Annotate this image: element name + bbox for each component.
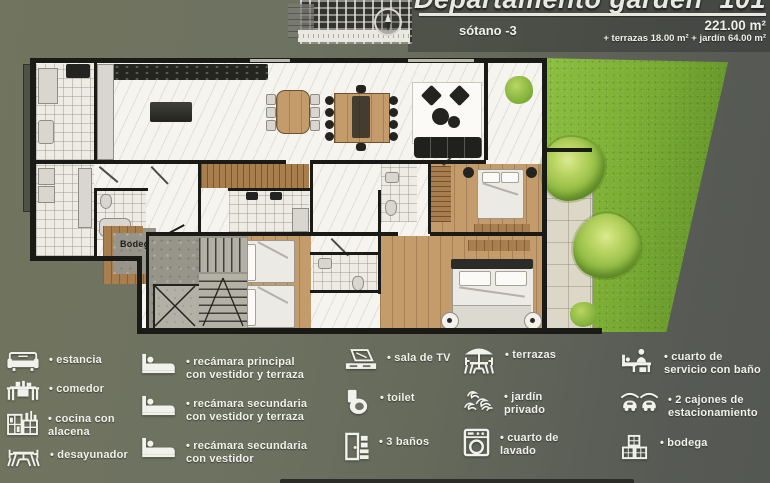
bench [468,240,530,251]
legend-label: • sala de TV [387,348,451,365]
bed-icon [140,436,177,459]
legend-label: • toilet [380,388,415,405]
washer [38,168,55,185]
legend-label: • cocina con alacena [48,409,120,439]
bodega-wall [103,226,143,233]
wall [94,62,97,162]
legend-label: • recámara secundaria con vestidor y ter… [186,394,312,424]
wall [542,148,592,152]
breakfast-chair [266,94,276,105]
toilet-fixture [100,194,112,209]
elevator [153,284,201,332]
legend-column: • terrazas • jardín privado • cuarto de … [462,345,578,458]
legend-item: • 2 cajones de estacionamiento [620,390,770,420]
wall [310,160,486,164]
breakfast-chair [266,120,276,131]
wall [428,162,431,234]
walkin-closet [201,164,309,188]
sofa-icon [6,350,40,373]
toilet-icon [344,388,371,415]
service-sink [38,120,54,144]
legend-label: • 2 cajones de estacionamiento [668,390,770,420]
breakfast-table-icon [6,445,41,468]
bench [474,224,530,232]
stairs-lower [199,274,247,328]
kitchen-cabinets [97,64,114,160]
dining-table-icon [6,379,40,403]
legend-label: • cuarto de lavado [500,428,562,458]
wall [542,58,547,333]
dining-chair [389,132,398,141]
legend-item: • bodega [620,433,770,462]
dining-chair [389,120,398,129]
legend-label: • cuarto de servicio con baño [664,347,768,377]
wall [310,290,380,293]
wall [228,188,313,191]
wall [36,160,286,164]
legend-label: • 3 baños [379,432,429,449]
legend-column: • sala de TV • toilet • 3 baños [344,348,456,461]
legend-item: • cuarto de servicio con baño [620,347,770,377]
dining-chair [389,108,398,117]
legend-item: • recámara secundaria con vestidor [140,436,312,466]
garden-plants-icon [462,387,495,412]
kitchen-island [150,102,192,122]
terrace-umbrella-icon [462,345,496,376]
bottom-bar [280,479,634,483]
wall [94,188,97,258]
legend-label: • estancia [49,350,102,367]
legend-item: • comedor [6,379,138,403]
sink-fixture [385,172,399,183]
bed-master [452,260,534,332]
legend-column: • estancia • comedor • cocina con alacen… [6,350,138,468]
storage-boxes-icon [620,433,651,462]
floor-plan: Bodega [0,0,770,345]
wall [430,232,546,236]
window [408,59,474,62]
washing-machine-icon [462,428,491,457]
stairs-upper [199,238,247,272]
kitchen-counter [112,64,268,80]
wall [146,232,149,330]
breakfast-chair [310,107,320,118]
legend-item: • recámara secundaria con vestidor y ter… [140,394,312,424]
service-room-icon [620,347,655,374]
wall [137,328,602,334]
legend-label: • comedor [49,379,104,396]
wall [30,256,142,261]
wall [310,162,313,236]
tv-icon [344,348,378,371]
legend-column: • recámara principal con vestidor y terr… [140,352,312,466]
bed-twin [241,285,295,328]
dining-chair [389,96,398,105]
legend-label: • jardín privado [504,387,560,417]
legend-item: • cuarto de lavado [462,428,578,458]
dining-chair [325,120,334,129]
legend-label: • terrazas [505,345,556,362]
dining-chair [356,143,366,151]
service-bed [38,68,58,104]
nightstand [463,167,474,178]
legend-item: • cocina con alacena [6,409,138,439]
shower [292,208,309,232]
terrace-plant [505,76,533,104]
kitchen-icon [6,409,39,436]
bed-icon [140,352,177,375]
bed-twin [241,240,295,283]
wall [484,60,488,160]
legend-label: • recámara principal con vestidor y terr… [186,352,312,382]
dining-chair [356,85,366,93]
legend-item: • sala de TV [344,348,456,371]
legend-label: • bodega [660,433,708,450]
bed-secondary [477,169,524,219]
legend-item: • recámara principal con vestidor y terr… [140,352,312,382]
double-sink [270,192,282,200]
legend-item: • jardín privado [462,387,578,417]
dining-chair [325,96,334,105]
dining-chair [325,132,334,141]
closet-shelving [431,166,451,222]
toilet-fixture [352,276,364,291]
wall [148,232,398,236]
wall [137,256,142,333]
breakfast-chair [310,94,320,105]
wall [198,162,201,234]
coffee-table [432,108,449,125]
legend-column: • cuarto de servicio con baño • 2 cajone… [620,347,770,462]
laundry-counter [78,168,92,228]
sofa [414,137,482,158]
legend-label: • desayunador [50,445,128,462]
nightstand [526,167,537,178]
bed-icon [140,394,177,417]
wall [94,188,148,191]
legend-item: • desayunador [6,445,138,468]
dining-chair [325,108,334,117]
dryer [38,186,55,203]
wall [378,190,381,294]
legend-item: • terrazas [462,345,578,376]
window [250,59,290,62]
legend-item: • toilet [344,388,456,415]
bathroom-icon [344,432,370,461]
service-closet [66,64,90,78]
sink-fixture [318,258,332,269]
legend-item: • 3 baños [344,432,456,461]
breakfast-table [276,90,310,134]
brochure-page: Departamento garden 101 sótano -3 221.00… [0,0,770,483]
dining-runner [352,96,370,138]
breakfast-chair [266,107,276,118]
garden-bush [570,302,597,327]
toilet-fixture [385,200,397,216]
double-sink [246,192,258,200]
parking-cars-icon [620,390,659,413]
legend-label: • recámara secundaria con vestidor [186,436,312,466]
breakfast-chair [310,120,320,131]
legend-item: • estancia [6,350,138,373]
coffee-table [448,116,460,128]
